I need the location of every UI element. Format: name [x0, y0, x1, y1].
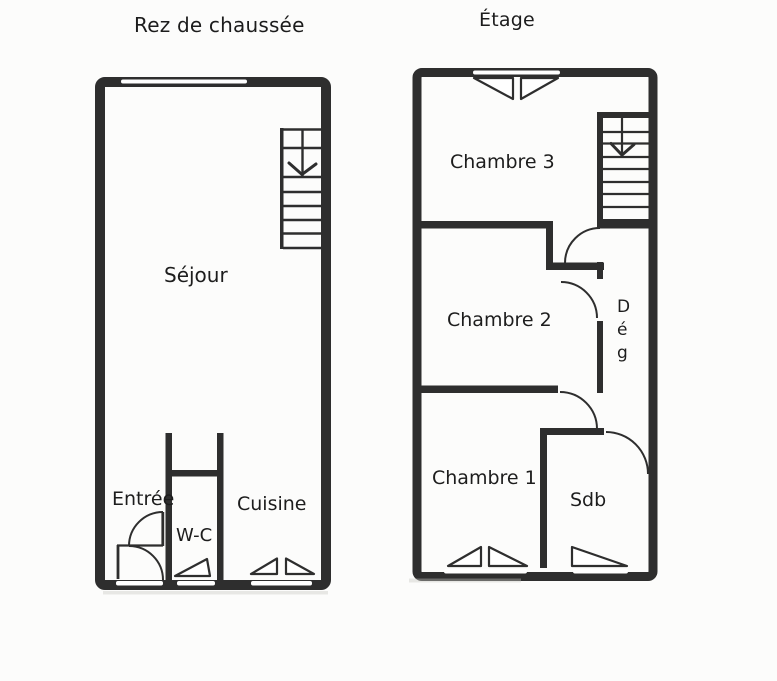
etage-staircase — [597, 112, 649, 229]
rdc-wc-window — [177, 581, 215, 586]
chambre1-window — [444, 569, 527, 574]
sdb-door-swing — [606, 432, 648, 474]
room-label-cuisine: Cuisine — [237, 493, 307, 515]
floor-title-rdc: Rez de chaussée — [134, 13, 305, 37]
rdc-entry-door-swing — [117, 512, 163, 580]
chambre2-door-swing — [561, 282, 597, 318]
scanned-floorplan-page: Rez de chaussée Étage Séjour Entrée W-C … — [0, 0, 777, 681]
room-label-entree: Entrée — [112, 488, 174, 510]
rdc-window-symbols — [175, 559, 314, 577]
room-label-sejour: Séjour — [164, 263, 228, 287]
rdc-kitchen-window — [251, 581, 312, 586]
room-label-deg: Dég — [617, 296, 632, 365]
room-label-wc: W-C — [176, 525, 212, 546]
chambre1-door-swing — [560, 392, 597, 429]
chambre3-door-swing — [565, 228, 600, 263]
floorplan-drawing — [0, 0, 777, 681]
rdc-entry-opening — [116, 581, 163, 586]
etage-window-symbols — [448, 547, 627, 566]
room-label-chambre3: Chambre 3 — [450, 151, 555, 173]
etage-top-window-symbol — [474, 78, 558, 99]
room-label-chambre2: Chambre 2 — [447, 309, 552, 331]
room-label-sdb: Sdb — [570, 489, 606, 511]
rdc-top-window — [121, 80, 247, 84]
rdc-staircase — [280, 128, 321, 249]
etage-interior-walls — [421, 221, 604, 568]
room-label-chambre1: Chambre 1 — [432, 467, 537, 489]
sdb-window — [573, 569, 628, 574]
etage-top-window — [473, 71, 560, 75]
floor-title-etage: Étage — [479, 9, 535, 31]
